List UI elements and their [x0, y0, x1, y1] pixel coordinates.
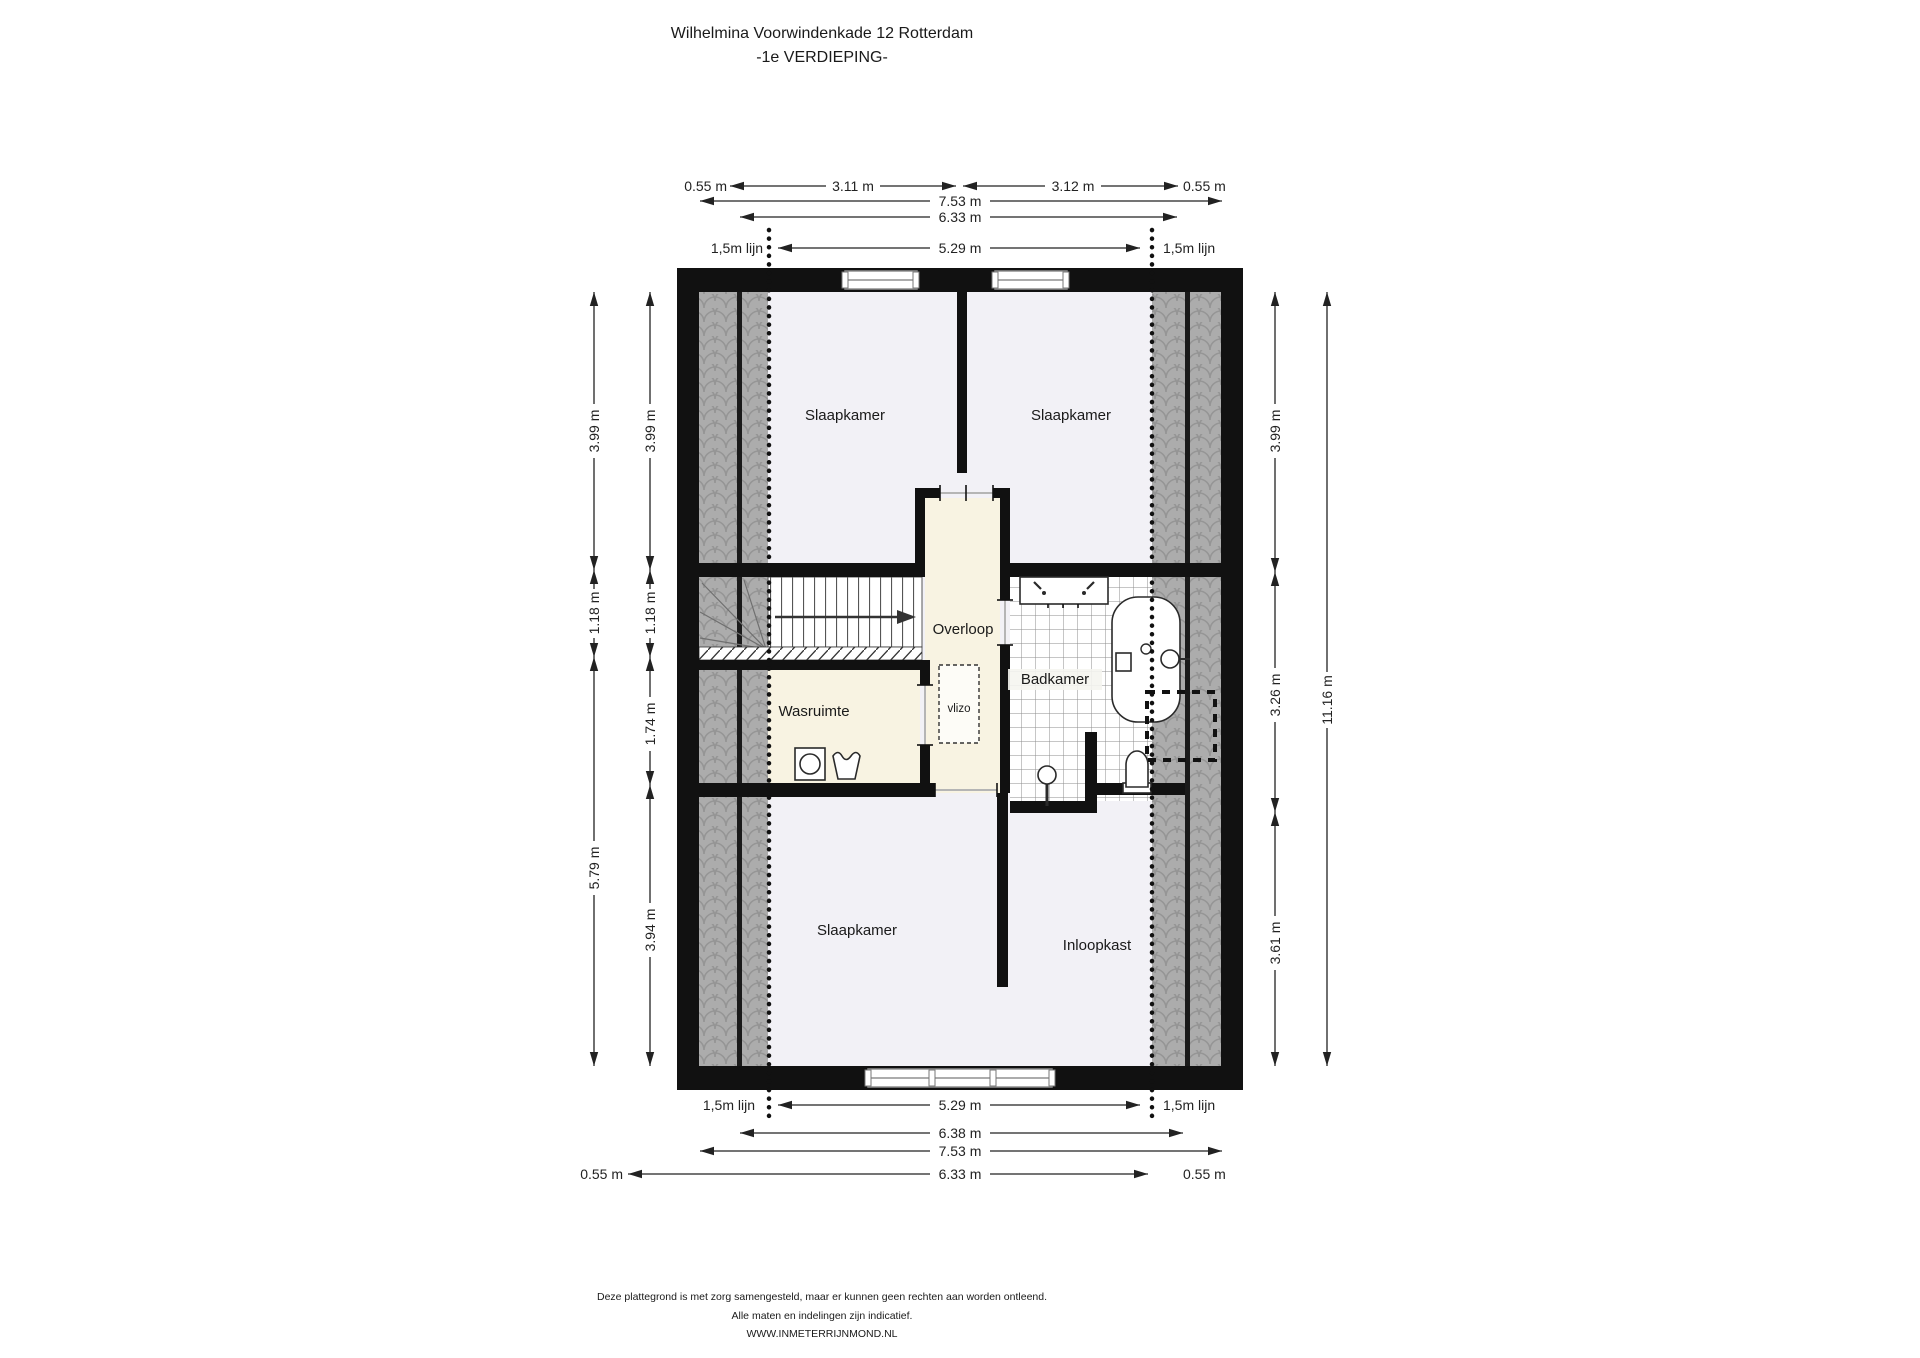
dimensions-bottom: 1,5m lijn 5.29 m 1,5m lijn 6.38 m 7.53 m… — [580, 1097, 1226, 1182]
bottom-headroom-left-label: 1,5m lijn — [703, 1097, 755, 1113]
floor-plan-svg: 0.55 m 3.11 m 3.12 m 0.55 m 7.53 m 6.33 … — [0, 0, 1920, 1358]
bottom-total-width-label: 7.53 m — [939, 1143, 982, 1159]
bottom-headroom-width-label: 5.29 m — [939, 1097, 982, 1113]
floor-plan-page: 0.55 m 3.11 m 3.12 m 0.55 m 7.53 m 6.33 … — [0, 0, 1920, 1358]
bottom-left-offset-label: 0.55 m — [580, 1166, 623, 1182]
room-label-bedroom-top-right: Slaapkamer — [1031, 407, 1111, 424]
left-inner-dim-1: 3.99 m — [642, 410, 658, 453]
left-inner-dim-4: 3.94 m — [642, 909, 658, 952]
dimensions-top: 0.55 m 3.11 m 3.12 m 0.55 m 7.53 m 6.33 … — [684, 178, 1226, 256]
top-headroom-right-label: 1,5m lijn — [1163, 240, 1215, 256]
bottom-mid-width-label: 6.38 m — [939, 1125, 982, 1141]
dimensions-left: 3.99 m 1.18 m 5.79 m 3.99 m 1.18 m 1.74 … — [586, 292, 658, 1066]
room-label-landing: Overloop — [933, 621, 994, 638]
dimensions-right: 3.99 m 3.26 m 3.61 m 11.16 m — [1267, 292, 1335, 1066]
disclaimer-footer: Deze plattegrond is met zorg samengestel… — [597, 1291, 1047, 1340]
top-headroom-left-label: 1,5m lijn — [711, 240, 763, 256]
bottom-right-offset-label: 0.55 m — [1183, 1166, 1226, 1182]
top-span-right-label: 3.12 m — [1052, 178, 1095, 194]
room-label-bedroom-bottom: Slaapkamer — [817, 922, 897, 939]
room-label-closet: Inloopkast — [1063, 937, 1132, 954]
window-top-left — [842, 271, 919, 289]
right-outer-dim-1: 11.16 m — [1319, 675, 1335, 725]
right-inner-dim-1: 3.99 m — [1267, 410, 1283, 453]
top-right-offset-label: 0.55 m — [1183, 178, 1226, 194]
stair-landing-hatch — [699, 647, 922, 660]
right-inner-dim-3: 3.61 m — [1267, 922, 1283, 965]
room-label-bathroom: Badkamer — [1021, 671, 1089, 688]
right-inner-dim-2: 3.26 m — [1267, 674, 1283, 717]
window-top-right — [992, 271, 1069, 289]
footer-line-2: Alle maten en indelingen zijn indicatief… — [732, 1310, 913, 1322]
title-line-1: Wilhelmina Voorwindenkade 12 Rotterdam — [671, 25, 973, 42]
bottom-headroom-right-label: 1,5m lijn — [1163, 1097, 1215, 1113]
window-bottom — [865, 1069, 1055, 1087]
toilet-icon — [1123, 751, 1151, 793]
room-label-loft-ladder: vlizo — [947, 703, 970, 715]
title-line-2: -1e VERDIEPING- — [756, 49, 888, 66]
room-label-bedroom-top-left: Slaapkamer — [805, 407, 885, 424]
footer-website: WWW.INMETERRIJNMOND.NL — [746, 1328, 897, 1340]
room-label-laundry: Wasruimte — [778, 703, 849, 720]
top-inner-width-label: 6.33 m — [939, 209, 982, 225]
left-outer-dim-1: 3.99 m — [586, 410, 602, 453]
left-outer-dim-3: 5.79 m — [586, 847, 602, 890]
plan-title: Wilhelmina Voorwindenkade 12 Rotterdam -… — [671, 25, 973, 66]
left-inner-dim-3: 1.74 m — [642, 703, 658, 746]
washing-machine-icon — [795, 748, 825, 780]
knee-wall-right — [1185, 292, 1190, 1066]
footer-line-1: Deze plattegrond is met zorg samengestel… — [597, 1291, 1047, 1303]
vanity-icon — [1020, 577, 1108, 608]
knee-wall-left — [737, 292, 742, 1066]
left-outer-dim-2: 1.18 m — [586, 592, 602, 635]
top-total-width-label: 7.53 m — [939, 193, 982, 209]
bottom-inner-width-label: 6.33 m — [939, 1166, 982, 1182]
top-left-offset-label: 0.55 m — [684, 178, 727, 194]
top-span-left-label: 3.11 m — [832, 178, 874, 194]
top-headroom-width-label: 5.29 m — [939, 240, 982, 256]
left-inner-dim-2: 1.18 m — [642, 592, 658, 635]
